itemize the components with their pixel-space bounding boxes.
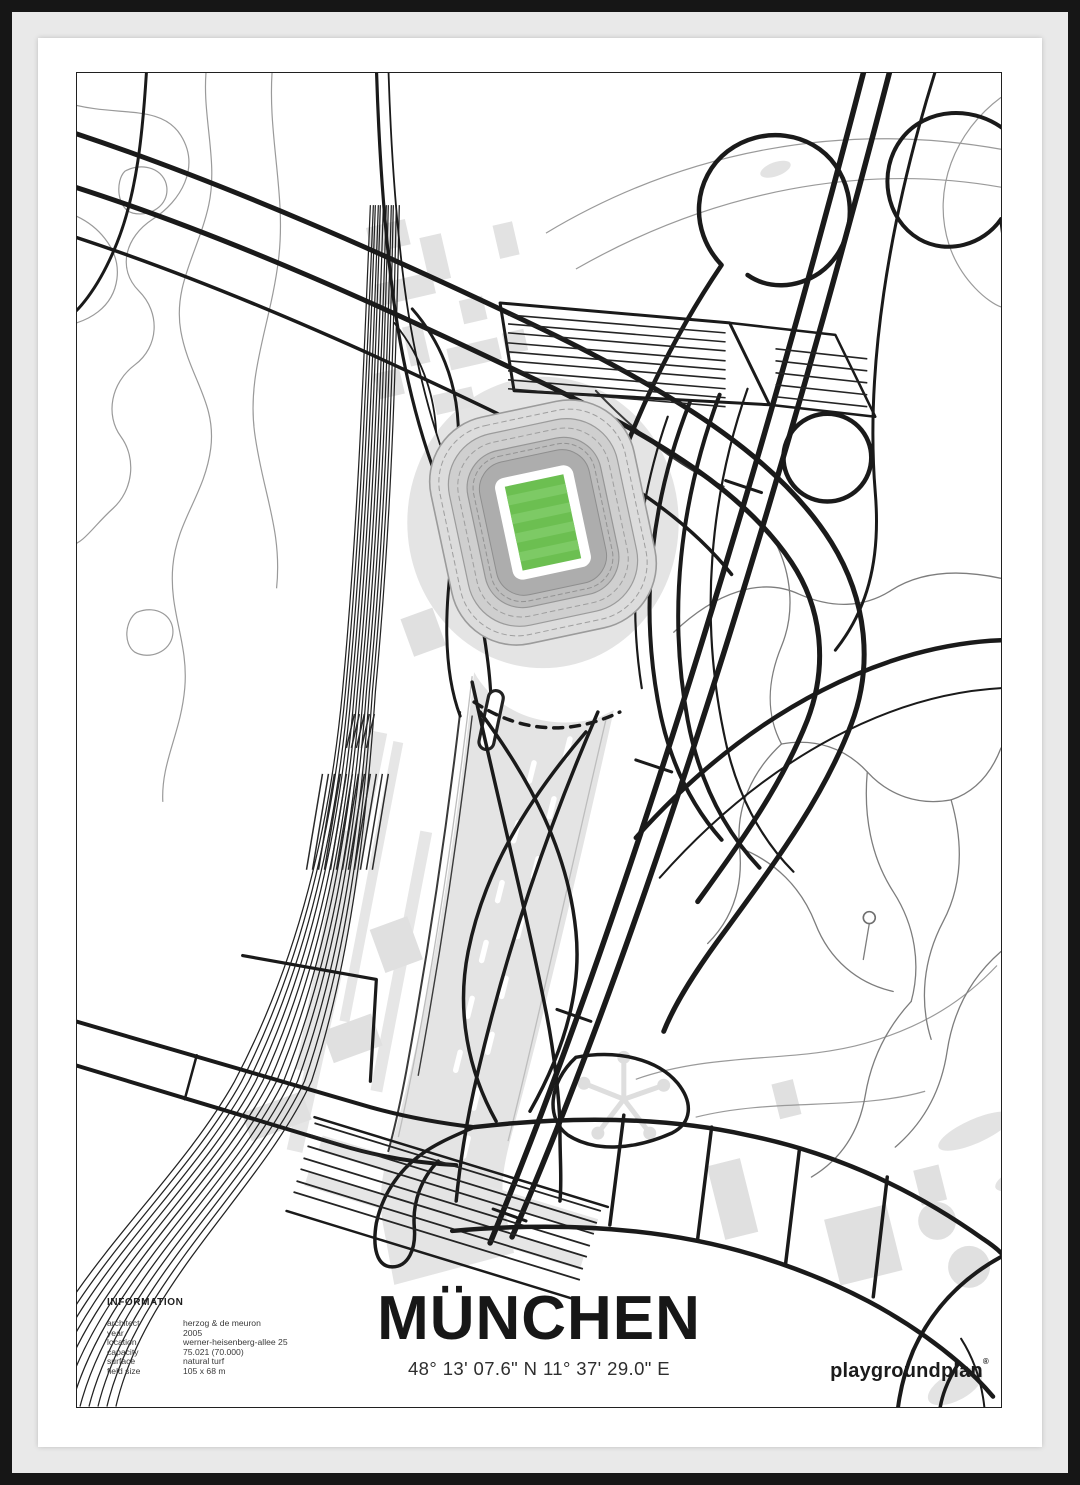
poster-paper: INFORMATION architect herzog & de meuron… — [38, 38, 1042, 1447]
map-border: INFORMATION architect herzog & de meuron… — [76, 72, 1002, 1408]
frame-matte: INFORMATION architect herzog & de meuron… — [12, 12, 1068, 1473]
roundabout-loop — [783, 414, 871, 502]
interchange-loop-east — [887, 113, 1001, 297]
brand-logo: playgroundplan® — [830, 1357, 989, 1383]
framed-poster-photo: { "poster": { "title": "MÜNCHEN", "coord… — [0, 0, 1080, 1485]
hill-viewpoint-marker — [863, 912, 875, 924]
registered-trademark-symbol: ® — [983, 1357, 989, 1366]
stadium-map-art — [77, 73, 1001, 1407]
brand-name: playgroundplan — [830, 1360, 983, 1382]
map-gray-areas — [241, 157, 1001, 1407]
poster-title: MÜNCHEN — [77, 1283, 1001, 1354]
railway-tracks — [77, 205, 399, 1406]
park-paths — [674, 542, 1001, 1177]
